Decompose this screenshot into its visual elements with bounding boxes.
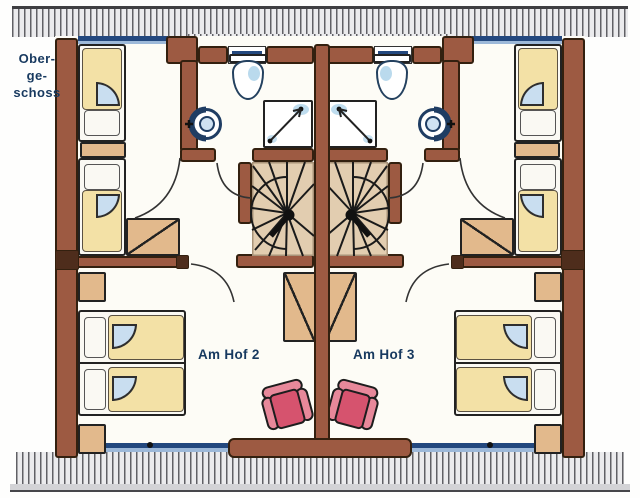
door-arc xyxy=(191,264,234,302)
stair-treads xyxy=(252,162,314,256)
ground-line xyxy=(10,484,630,492)
unit-label-am-hof-2: Am Hof 2 xyxy=(198,347,260,362)
unit-am-hof-3 xyxy=(320,36,585,466)
door-arc xyxy=(135,158,180,218)
floor-plan: Ober- ge- schoss Am Hof 2 Am Hof 3 xyxy=(0,0,640,498)
exterior-wall-right xyxy=(562,38,585,458)
stair-treads xyxy=(326,162,388,256)
floor-title: Ober- ge- schoss xyxy=(2,50,72,101)
wall-joint xyxy=(561,250,585,270)
party-wall xyxy=(314,44,330,444)
unit-label-am-hof-3: Am Hof 3 xyxy=(353,347,415,362)
floor-title-line: Ober- xyxy=(2,50,72,67)
door-arc xyxy=(217,163,251,198)
washbasin xyxy=(185,110,221,139)
wall xyxy=(228,438,412,458)
floor-title-line: ge- xyxy=(2,67,72,84)
shower-arrow xyxy=(268,107,304,144)
plan-linework xyxy=(55,36,320,466)
floor-title-line: schoss xyxy=(2,84,72,101)
wall-joint xyxy=(55,250,79,270)
plan-linework xyxy=(320,36,585,466)
terrace-hatching-top xyxy=(12,6,628,37)
unit-am-hof-2 xyxy=(55,36,320,466)
exterior-wall-left xyxy=(55,38,78,458)
door-arc xyxy=(389,163,423,198)
door-arc xyxy=(460,158,505,218)
washbasin xyxy=(420,110,456,139)
door-arc xyxy=(406,264,449,302)
shower-arrow xyxy=(337,107,373,144)
